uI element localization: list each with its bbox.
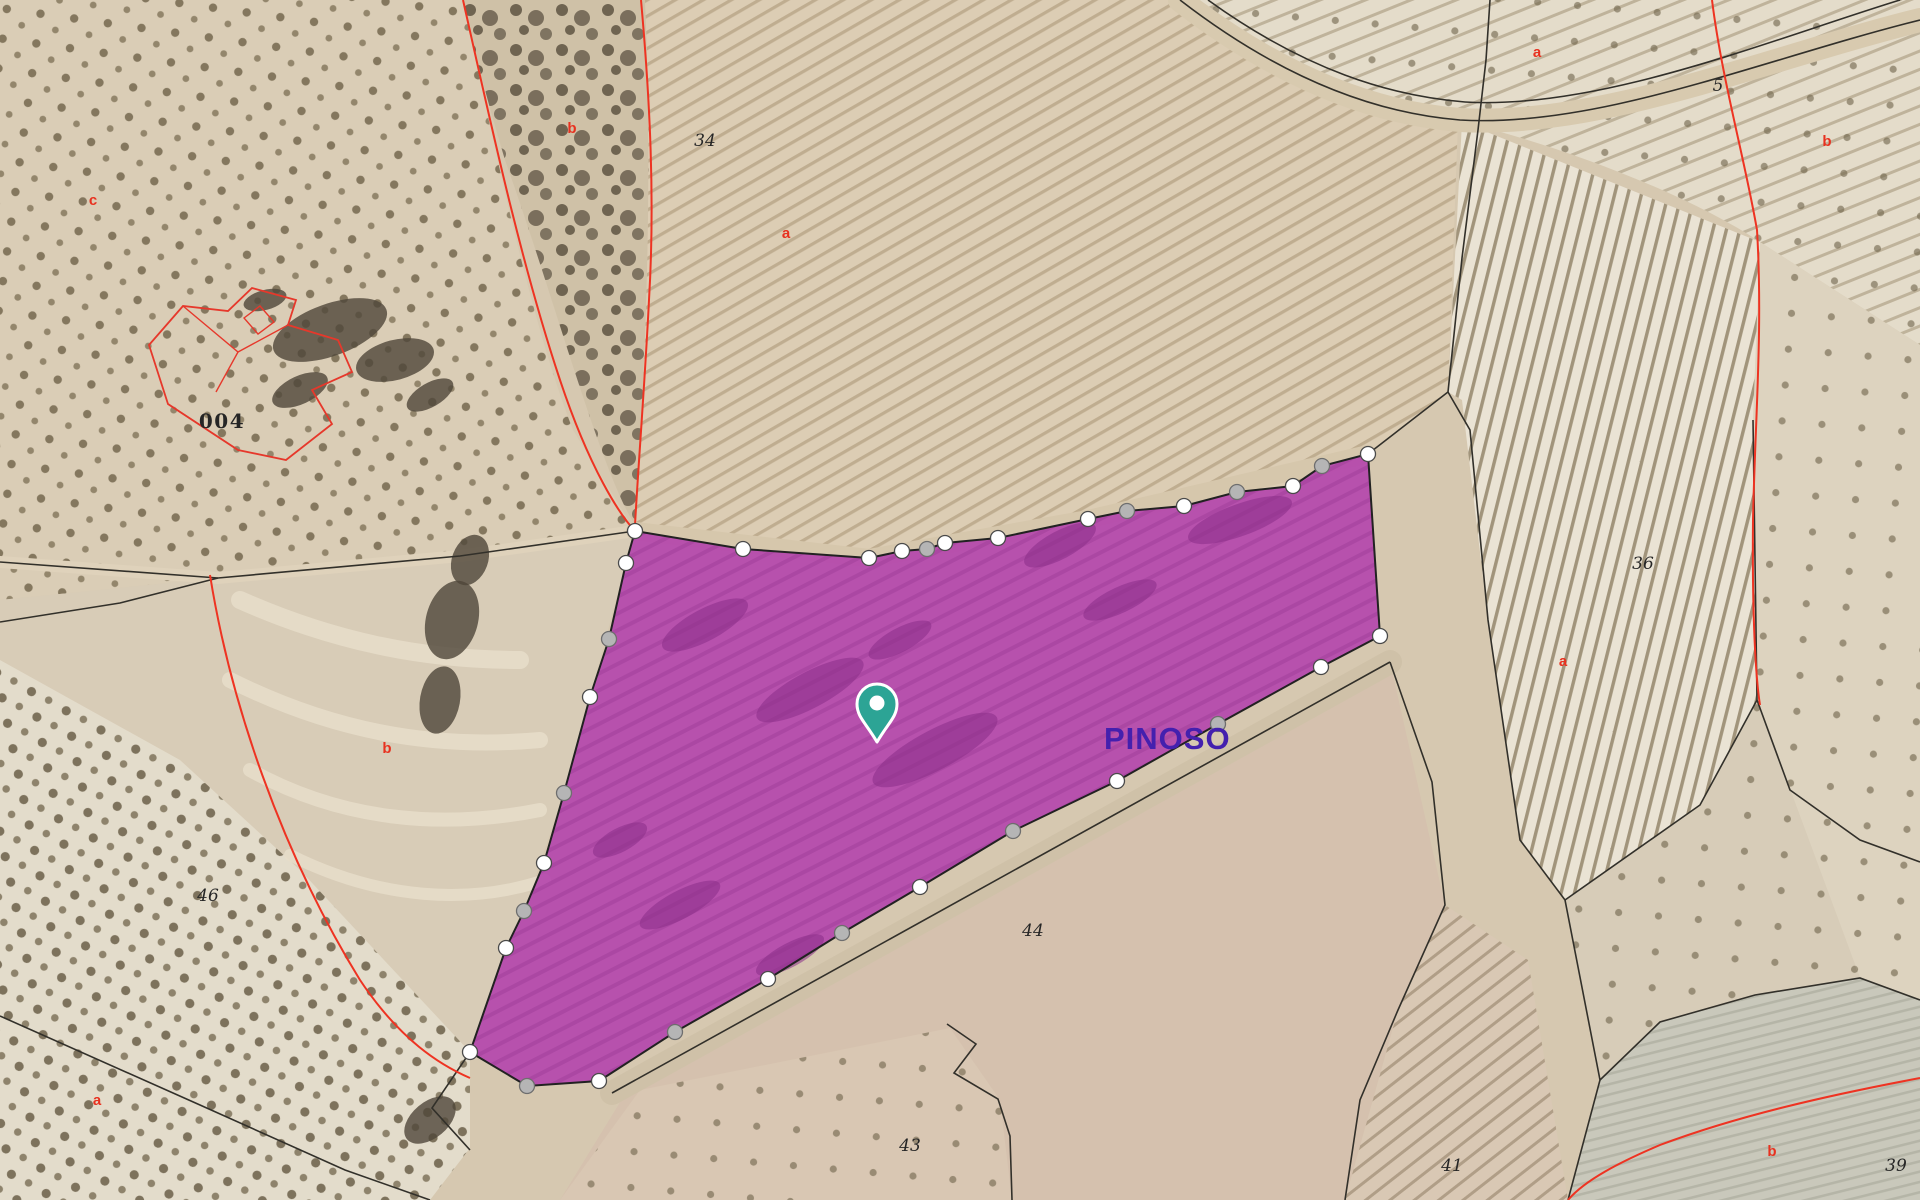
parcel-vertex-handle-19[interactable] (913, 880, 928, 895)
parcel-number-label-1: a (782, 225, 791, 242)
parcel-number-label-7: a (93, 1092, 102, 1109)
parcel-vertex-handle-0[interactable] (628, 524, 643, 539)
map-canvas[interactable]: 34abc00446ba44434139b36aa5bPINOSO (0, 0, 1920, 1200)
parcel-vertex-handle-13[interactable] (1361, 447, 1376, 462)
parcel-vertex-handle-3[interactable] (895, 544, 910, 559)
parcel-number-label-2: b (567, 120, 576, 137)
parcel-vertex-handle-31[interactable] (602, 632, 617, 647)
parcel-vertex-handle-25[interactable] (463, 1045, 478, 1060)
parcel-vertex-handle-10[interactable] (1230, 485, 1245, 500)
parcel-vertex-handle-9[interactable] (1177, 499, 1192, 514)
parcel-number-label-5: 46 (196, 886, 219, 906)
parcel-vertex-handle-7[interactable] (1081, 512, 1096, 527)
parcel-number-label-16: 5 (1713, 76, 1724, 96)
parcel-vertex-handle-21[interactable] (761, 972, 776, 987)
parcel-number-label-12: b (1767, 1143, 1776, 1160)
parcel-vertex-handle-5[interactable] (938, 536, 953, 551)
parcel-vertex-handle-24[interactable] (520, 1079, 535, 1094)
parcel-vertex-handle-4[interactable] (920, 542, 935, 557)
parcel-vertex-handle-30[interactable] (583, 690, 598, 705)
map-viewport[interactable]: 34abc00446ba44434139b36aa5bPINOSO (0, 0, 1920, 1200)
parcel-vertex-handle-6[interactable] (991, 531, 1006, 546)
parcel-vertex-handle-12[interactable] (1315, 459, 1330, 474)
parcel-number-label-9: 43 (898, 1136, 921, 1156)
parcel-vertex-handle-2[interactable] (862, 551, 877, 566)
parcel-vertex-handle-28[interactable] (537, 856, 552, 871)
parcel-number-label-0: 34 (694, 131, 716, 151)
parcel-vertex-handle-26[interactable] (499, 941, 514, 956)
parcel-number-label-3: c (89, 192, 97, 209)
parcel-vertex-handle-17[interactable] (1110, 774, 1125, 789)
parcel-number-label-4: 004 (199, 409, 245, 433)
parcel-number-label-11: 39 (1885, 1156, 1907, 1176)
parcel-number-label-17: b (1822, 133, 1831, 150)
parcel-number-label-8: 44 (1021, 921, 1044, 941)
parcel-number-label-10: 41 (1440, 1156, 1463, 1176)
parcel-vertex-handle-27[interactable] (517, 904, 532, 919)
parcel-number-label-6: b (382, 740, 391, 757)
parcel-vertex-handle-15[interactable] (1314, 660, 1329, 675)
parcel-vertex-handle-32[interactable] (619, 556, 634, 571)
parcel-vertex-handle-22[interactable] (668, 1025, 683, 1040)
parcel-vertex-handle-29[interactable] (557, 786, 572, 801)
parcel-vertex-handle-1[interactable] (736, 542, 751, 557)
parcel-number-label-13: 36 (1632, 554, 1654, 574)
parcel-number-label-14: a (1559, 653, 1568, 670)
parcel-vertex-handle-23[interactable] (592, 1074, 607, 1089)
municipality-label: PINOSO (1104, 721, 1231, 756)
location-pin-hole (870, 696, 885, 711)
parcel-vertex-handle-11[interactable] (1286, 479, 1301, 494)
parcel-number-label-15: a (1533, 44, 1542, 61)
parcel-vertex-handle-14[interactable] (1373, 629, 1388, 644)
parcel-vertex-handle-20[interactable] (835, 926, 850, 941)
parcel-vertex-handle-8[interactable] (1120, 504, 1135, 519)
parcel-vertex-handle-18[interactable] (1006, 824, 1021, 839)
